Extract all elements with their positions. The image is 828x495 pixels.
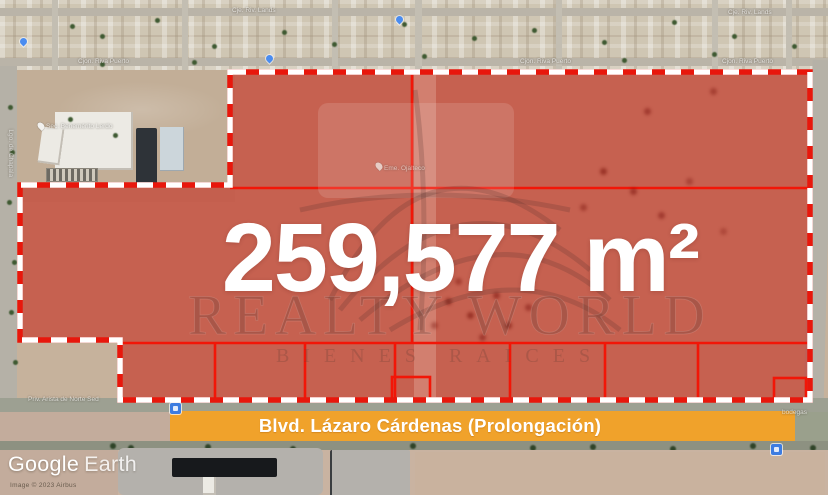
google-earth-logo: GoogleEarth [8,452,137,477]
street-label: Cje. Riv. Lands [728,10,772,17]
boulevard-banner: Blvd. Lázaro Cárdenas (Prolongación) [170,411,795,441]
google-earth-map-canvas[interactable]: REALTY WORLD BIENES RAICES 259,577 m² Bl… [0,0,828,495]
street-label: bodegas [782,410,807,417]
street-label: Cjon. Riva Puerto [520,59,571,66]
road-sign-icon[interactable] [170,403,181,414]
street-label: Cjon. Riva Puerto [78,59,129,66]
parcel-area-label: 259,577 m² [120,202,800,314]
street-label: Cje. Riv. Lands [232,8,276,15]
google-earth-logo-google: Google [8,452,79,476]
imagery-credit: Image © 2023 Airbus [10,482,77,489]
place-label: Eme. Ojalteco [384,166,425,173]
google-earth-logo-earth: Earth [84,452,137,476]
street-label: Priv. Arista de Norte Sed [28,397,99,404]
place-label: Sec. Benemérito Lerdo [46,124,112,131]
watermark-tagline-text: BIENES RAICES [276,345,604,367]
boulevard-banner-label: Blvd. Lázaro Cárdenas (Prolongación) [170,415,690,437]
road-sign-icon[interactable] [771,444,782,455]
street-label-vertical: Lgo. de Chapala [7,129,14,177]
street-label: Cjon. Riva Puerto [722,59,773,66]
